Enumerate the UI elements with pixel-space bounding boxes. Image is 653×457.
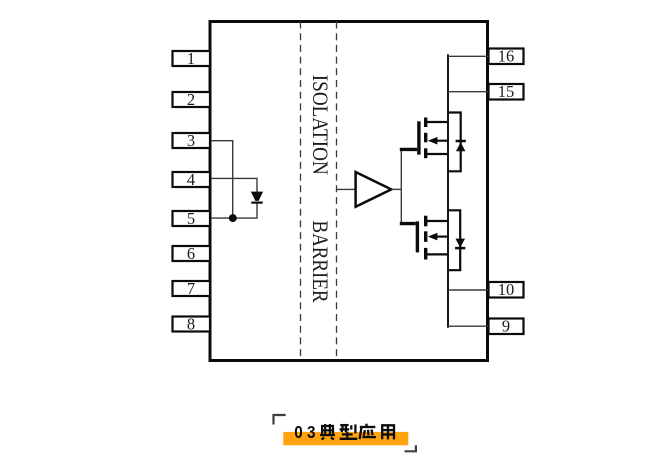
svg-text:4: 4 (187, 170, 195, 189)
svg-text:3: 3 (187, 131, 195, 150)
svg-text:7: 7 (187, 279, 195, 298)
svg-text:BARRIER: BARRIER (308, 221, 333, 303)
svg-text:0 3: 0 3 (294, 422, 315, 442)
svg-text:8: 8 (187, 314, 195, 333)
svg-text:16: 16 (498, 47, 515, 66)
svg-text:15: 15 (498, 82, 515, 101)
svg-text:2: 2 (187, 90, 195, 109)
svg-text:6: 6 (187, 244, 195, 263)
svg-text:5: 5 (187, 209, 195, 228)
svg-text:1: 1 (187, 49, 195, 68)
svg-text:ISOLATION: ISOLATION (308, 75, 333, 175)
svg-text:10: 10 (498, 280, 515, 299)
svg-text:9: 9 (502, 317, 510, 336)
